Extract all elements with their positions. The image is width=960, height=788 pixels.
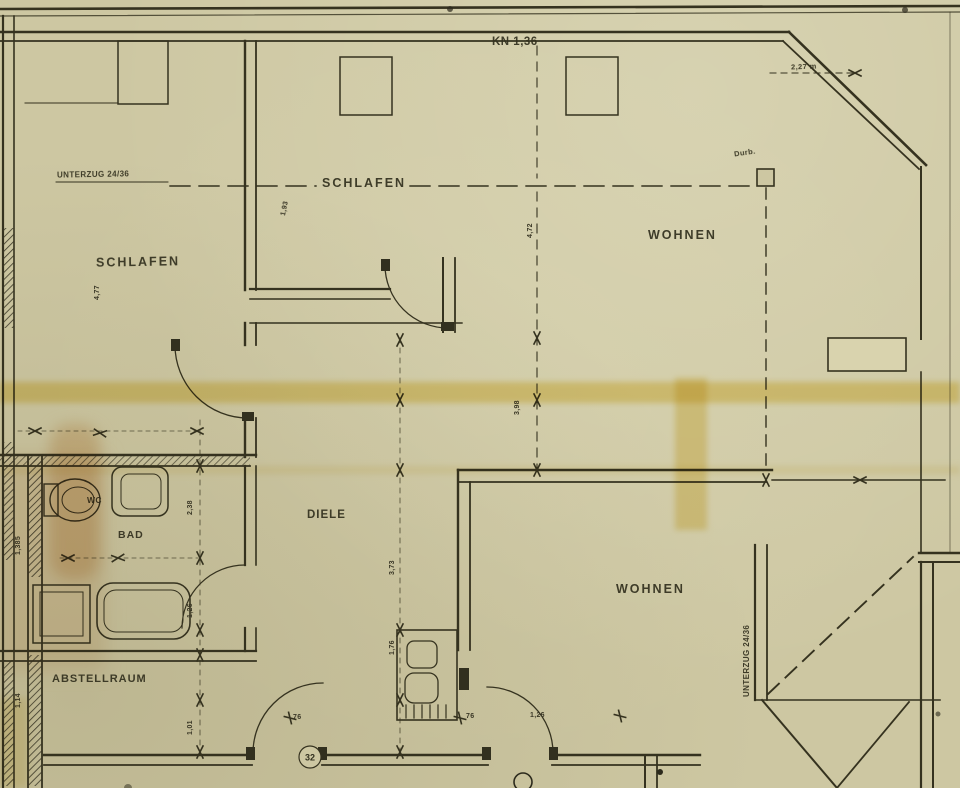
room-label-wohnen-bottom: WOHNEN xyxy=(616,582,685,596)
room-label-schlafen-mid: SCHLAFEN xyxy=(322,176,406,190)
room-label-bad: BAD xyxy=(118,529,144,541)
beam-note-top: UNTERZUG 24/36 xyxy=(57,169,129,179)
window-piers xyxy=(118,41,618,115)
dim-note-top-right: 2,27 m xyxy=(791,62,817,72)
dimension-label: 1,76 xyxy=(389,640,396,655)
dimension-label: 4,72 xyxy=(527,223,534,238)
toilet-tank xyxy=(44,484,58,516)
dimension-label: 2,38 xyxy=(187,500,194,515)
dimension-label: 1,14 xyxy=(15,693,22,708)
dimension-label: 1,01 xyxy=(187,720,194,735)
dashed-lines xyxy=(18,46,913,752)
dimension-label: 1,26 xyxy=(187,603,194,618)
dimension-label: 1,385 xyxy=(15,536,22,555)
corner-junction xyxy=(757,169,774,186)
floor-plan: 32 xyxy=(0,0,960,788)
dimension-label: 4,77 xyxy=(94,285,101,300)
wall-niche xyxy=(828,338,906,371)
dimension-label: 76 xyxy=(293,714,301,721)
scan-specks xyxy=(124,6,941,788)
sink-basin-icon xyxy=(407,641,437,668)
room-label-schlafen-left: SCHLAFEN xyxy=(96,254,180,269)
room-label-abstellraum: ABSTELLRAUM xyxy=(52,673,147,685)
door-number-label: 32 xyxy=(305,753,315,763)
dimension-label: 1,26 xyxy=(530,712,545,719)
door-arcs: 32 xyxy=(171,259,558,768)
tick-marks xyxy=(29,70,866,758)
room-label-wohnen-top: WOHNEN xyxy=(648,228,717,242)
height-note-kn: KN 1,36 xyxy=(492,36,538,48)
beam-note-right: UNTERZUG 24/36 xyxy=(742,625,751,697)
sink-basin-icon xyxy=(405,673,438,703)
dimension-label: 3,98 xyxy=(514,400,521,415)
floor-plan-linework: 32 xyxy=(0,0,960,788)
dimension-label: 3,73 xyxy=(389,560,396,575)
dimension-label: 76 xyxy=(466,713,474,720)
room-label-diele: DIELE xyxy=(307,509,346,521)
interior-walls xyxy=(0,41,945,700)
room-label-wc: WC xyxy=(87,495,102,505)
bay-triangle xyxy=(762,700,909,788)
